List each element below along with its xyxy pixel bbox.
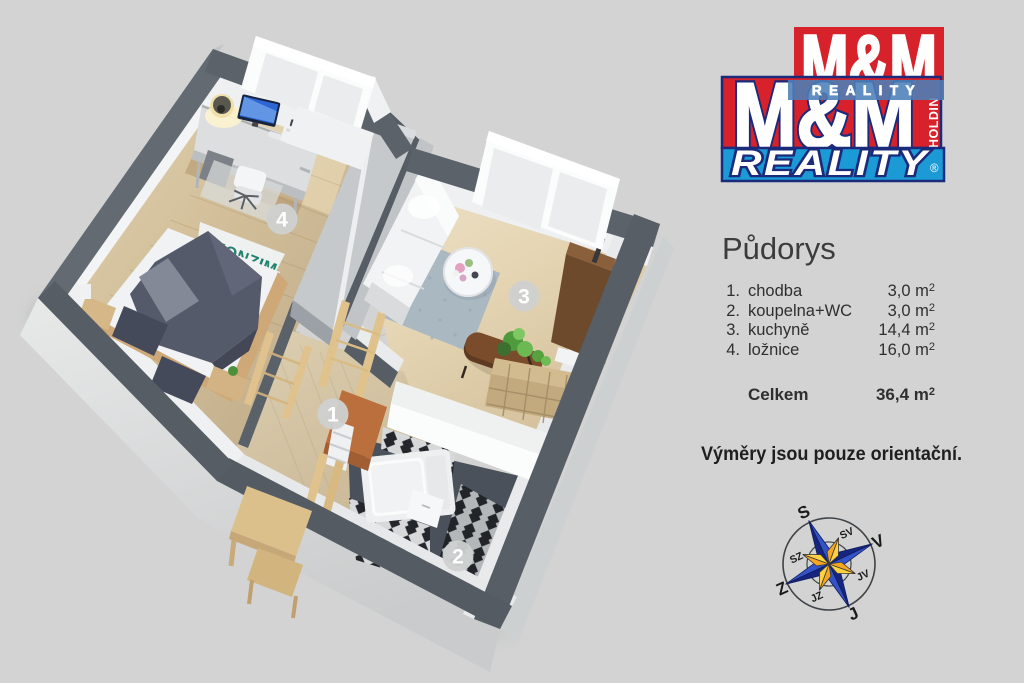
svg-text:2.: 2.: [726, 302, 740, 320]
svg-text:koupelna+WC: koupelna+WC: [748, 302, 852, 320]
svg-text:Výměry jsou pouze orientační.: Výměry jsou pouze orientační.: [701, 444, 962, 465]
svg-text:14,4 m2: 14,4 m2: [878, 321, 935, 339]
svg-text:3.: 3.: [726, 321, 740, 339]
svg-text:Celkem: Celkem: [748, 385, 808, 404]
svg-text:1: 1: [327, 404, 339, 427]
svg-text:4.: 4.: [726, 341, 740, 359]
svg-text:kuchyně: kuchyně: [748, 321, 809, 339]
svg-text:4: 4: [276, 209, 288, 232]
svg-text:HOLDIN: HOLDIN: [927, 97, 941, 148]
svg-text:®: ®: [930, 163, 939, 175]
svg-text:REALITY: REALITY: [731, 144, 930, 183]
svg-text:3,0 m2: 3,0 m2: [888, 302, 935, 320]
svg-text:3,0 m2: 3,0 m2: [888, 282, 935, 300]
svg-text:chodba: chodba: [748, 282, 803, 300]
svg-text:1.: 1.: [726, 282, 740, 300]
svg-text:REALITY: REALITY: [812, 83, 922, 98]
svg-text:16,0 m2: 16,0 m2: [878, 341, 935, 359]
svg-text:36,4 m2: 36,4 m2: [876, 385, 935, 404]
svg-text:Půdorys: Půdorys: [722, 231, 836, 266]
svg-text:3: 3: [518, 286, 530, 309]
svg-text:ložnice: ložnice: [748, 341, 799, 359]
svg-text:2: 2: [452, 546, 464, 569]
